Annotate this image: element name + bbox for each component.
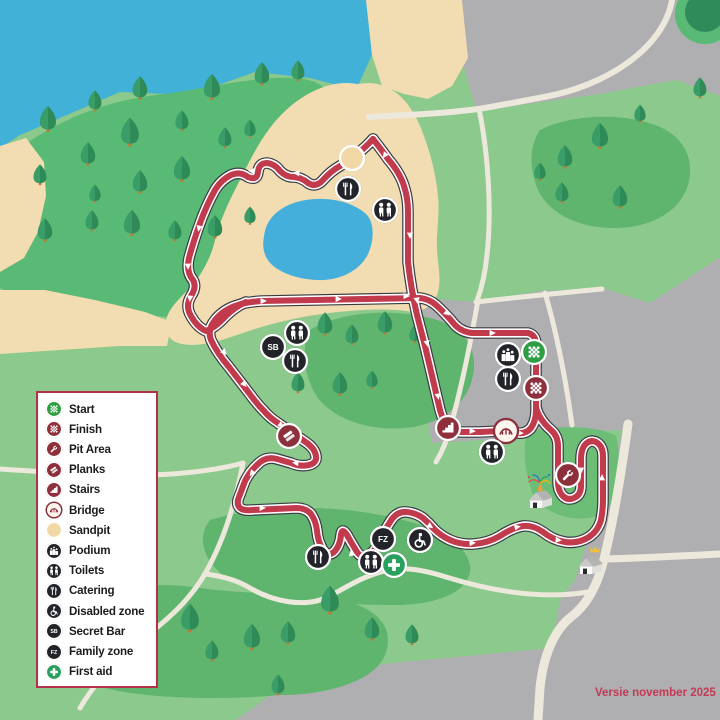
marker-family-zone: FZ	[370, 526, 397, 553]
marker-disabled-zone	[407, 527, 434, 554]
legend-item-secret-bar: SBSecret Bar	[45, 621, 156, 641]
legend-item-label: Disabled zone	[69, 605, 144, 618]
marker-catering	[495, 366, 522, 393]
legend-item-label: Secret Bar	[69, 625, 125, 638]
legend-item-catering: Catering	[45, 581, 156, 601]
marker-first-aid	[381, 552, 408, 579]
legend-item-label: Stairs	[69, 483, 100, 496]
legend-item-finish: Finish	[45, 419, 156, 439]
legend-item-label: Sandpit	[69, 524, 110, 537]
legend-item-label: Finish	[69, 423, 102, 436]
marker-toilets	[284, 320, 311, 347]
marker-catering	[282, 348, 309, 375]
legend-item-disabled-zone: Disabled zone	[45, 601, 156, 621]
legend-icon-finish	[45, 420, 63, 438]
legend-icon-first-aid	[45, 663, 63, 681]
legend-icon-planks	[45, 461, 63, 479]
marker-planks	[276, 423, 303, 450]
marker-toilets	[372, 197, 399, 224]
legend-item-label: Start	[69, 403, 94, 416]
marker-toilets	[479, 439, 506, 466]
svg-text:SB: SB	[267, 343, 278, 352]
legend-item-label: Bridge	[69, 504, 105, 517]
legend-item-start: Start	[45, 399, 156, 419]
legend-icon-disabled-zone	[45, 602, 63, 620]
version-label: Versie november 2025	[595, 687, 716, 699]
marker-catering	[335, 176, 362, 203]
legend-icon-pit-area	[45, 440, 63, 458]
legend-icon-podium	[45, 542, 63, 560]
legend-icon-sandpit	[45, 521, 63, 539]
svg-text:FZ: FZ	[378, 535, 388, 544]
legend-icon-start	[45, 400, 63, 418]
legend-item-label: Pit Area	[69, 443, 111, 456]
legend-icon-bridge	[45, 501, 63, 519]
legend-box: StartFinishPit AreaPlanksStairsBridgeSan…	[36, 391, 158, 688]
pond	[263, 199, 372, 280]
legend-item-label: Toilets	[69, 564, 104, 577]
legend-icon-stairs	[45, 481, 63, 499]
legend-icon-toilets	[45, 562, 63, 580]
legend-icon-family-zone: FZ	[45, 643, 63, 661]
legend-item-label: Podium	[69, 544, 110, 557]
svg-text:SB: SB	[50, 629, 58, 635]
legend-item-sandpit: Sandpit	[45, 520, 156, 540]
marker-catering	[305, 544, 332, 571]
legend-item-first-aid: First aid	[45, 662, 156, 682]
legend-icon-catering	[45, 582, 63, 600]
legend-item-label: Planks	[69, 463, 105, 476]
marker-secret-bar: SB	[260, 334, 287, 361]
legend-item-pit-area: Pit Area	[45, 439, 156, 459]
legend-item-stairs: Stairs	[45, 480, 156, 500]
legend-item-label: Family zone	[69, 645, 133, 658]
marker-pit-area	[555, 462, 582, 489]
marker-sandpit	[339, 145, 366, 172]
legend-item-family-zone: FZFamily zone	[45, 642, 156, 662]
marker-stairs	[435, 415, 462, 442]
svg-text:FZ: FZ	[51, 650, 58, 656]
legend-item-toilets: Toilets	[45, 561, 156, 581]
legend-item-label: Catering	[69, 584, 114, 597]
legend-item-podium: Podium	[45, 541, 156, 561]
legend-item-planks: Planks	[45, 460, 156, 480]
marker-podium	[495, 342, 522, 369]
legend-item-label: First aid	[69, 665, 112, 678]
marker-finish	[523, 375, 550, 402]
marker-toilets	[358, 549, 385, 576]
marker-start	[521, 339, 548, 366]
legend-item-bridge: Bridge	[45, 500, 156, 520]
legend-icon-secret-bar: SB	[45, 622, 63, 640]
tree	[406, 624, 419, 645]
tree	[292, 372, 305, 393]
course-map-page: SBFZ StartFinishPit AreaPlanksStairsBrid…	[0, 0, 720, 720]
